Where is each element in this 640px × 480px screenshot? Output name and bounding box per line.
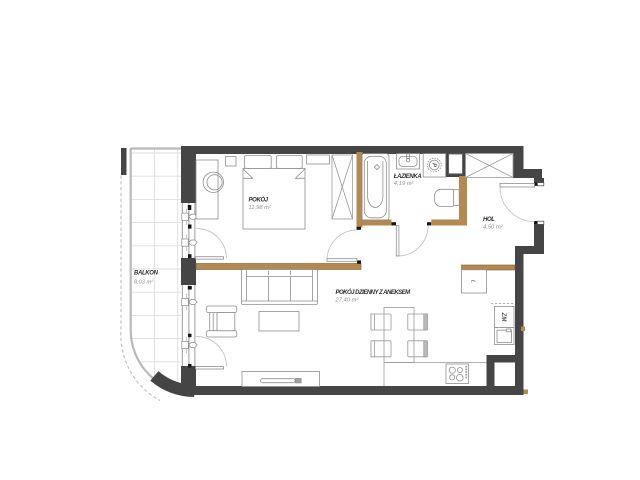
svg-text:8,03 m²: 8,03 m²: [134, 280, 154, 286]
svg-text:Ł: Ł: [469, 280, 475, 283]
svg-text:ZM: ZM: [500, 312, 506, 323]
svg-text:4,50 m²: 4,50 m²: [483, 225, 504, 231]
svg-text:POKÓJ: POKÓJ: [249, 196, 269, 203]
svg-text:11,98 m²: 11,98 m²: [249, 205, 273, 211]
svg-text:27,40 m²: 27,40 m²: [335, 298, 360, 304]
svg-text:4,19 m²: 4,19 m²: [394, 181, 415, 187]
svg-text:HOL: HOL: [483, 217, 495, 223]
svg-text:P: P: [430, 163, 436, 167]
svg-text:ŁAZIENKA: ŁAZIENKA: [393, 174, 422, 180]
svg-text:POKÓJ DZIENNY Z ANEKSEM: POKÓJ DZIENNY Z ANEKSEM: [336, 289, 412, 296]
svg-text:BALKON: BALKON: [134, 271, 159, 277]
